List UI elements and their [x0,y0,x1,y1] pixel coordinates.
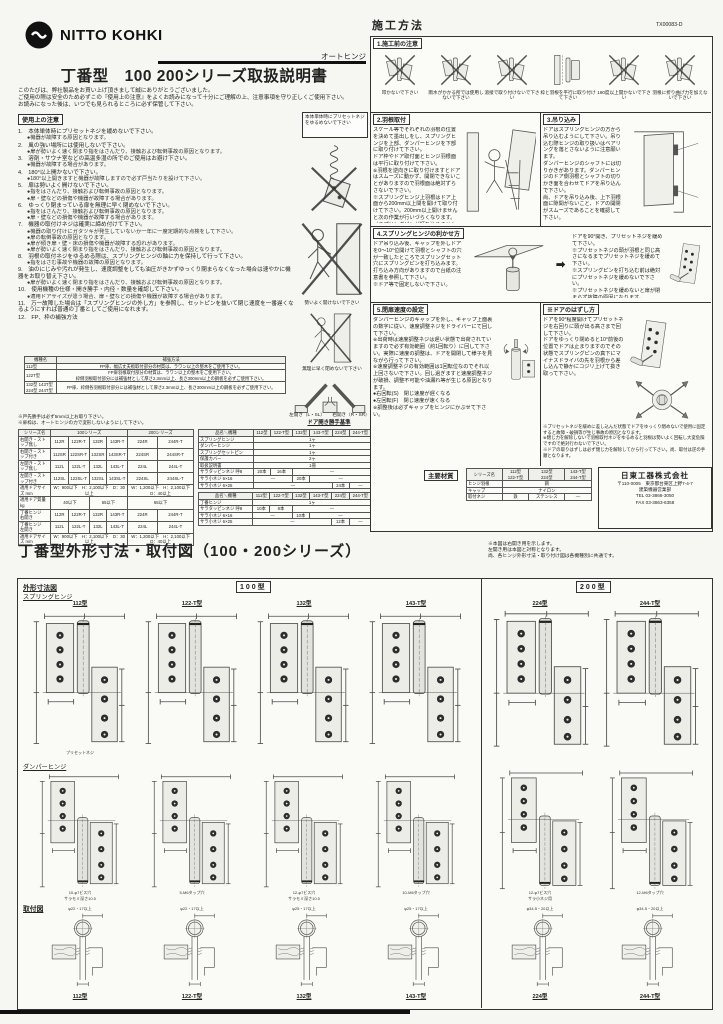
materials-heading: 主要材質 [424,470,458,481]
table-row: 左開き・ストップ付き112SL122SL-T132SL143SL-T224SL2… [19,473,194,485]
table-cell: シリーズ名 [19,430,51,437]
materials-table: シリーズ名112型 122-T型132型 224型143-T型 244-T型ヒン… [466,468,592,501]
brand-logo: NITTO KOHKI [24,20,163,50]
table-cell: 132R [89,436,107,448]
damper-hinge-drawing-122t [142,772,242,890]
parallel-mount-icon [546,50,590,90]
hole-note: 10-M6タップ穴 [366,890,466,896]
group-200-label: 200型 [576,581,611,593]
table-cell: 122L-T [68,460,89,472]
table-cell: 132型 [292,493,309,500]
precaution-item: 8. 羽根の取付ネジをゆるめる際は、スプリングヒンジの軸に力を保持して行って下さ… [18,254,296,267]
table-cell: 機種名 [25,357,57,364]
table-cell: 112型 [25,363,57,370]
mount-dim: φ25・17以上 [262,906,346,912]
table-cell: 丁番ヒンジ 左開き [19,521,51,533]
preset-screw-label: プリセットネジ [30,750,130,756]
table-cell: 122T型 [25,370,57,382]
table-cell: スプリングヒンジ [199,436,254,443]
divider [540,112,541,226]
right-open-label: 右開き（R・SR） [330,412,372,417]
table-cell: 224型 [332,493,349,500]
table-row: サラ小ネジ 6×16―10本― [199,512,372,519]
sec3-heading: 3.吊り込み [543,114,580,125]
door-close-caption: 無理に早く閉めないで下さい [294,366,370,371]
table-cell: 224SR [128,448,158,460]
sec5-body: ダンパーヒンジのキャップを外し、キャップ上面裏の数字に従い、速度調整ネジをドライ… [373,317,493,463]
table-row: サラタッピンネジ 呼820本16本― [199,469,372,476]
table-cell: 224L [128,521,158,533]
table-cell: 適用ドア質量 kg [19,497,51,509]
leaf-screwdriver-figure-2 [626,314,678,380]
sec4-body-right: ドアを90°開き、プリセットネジを緩めて下さい。 ※プリセットネジの頭が羽根と同… [572,234,664,298]
table-cell: 143R-T [107,436,128,448]
table-row: 品名＼機種112型122-T型132型143-T型224型244-T型 [199,493,372,500]
series-divider [481,578,482,1008]
table-row: 122T型FP扉羽根取付部分の材質は、ラワン以上の堅木をご使用下さい。 枠側羽根… [25,370,286,382]
table-cell: W：1,200以下 H：2,100以下 D：40以上 [128,485,194,497]
table-cell: 鋼 [502,481,591,488]
table-cell: 16本 [270,469,292,476]
mount-dim: φ22・17以上 [150,906,234,912]
sec1-figure: 叩かないで下さい [372,50,428,101]
sec3-body: ドアはスプリングヒンジの方から吊り込むようにして下さい。吊り込む際ヒンジの取り扱… [543,127,625,223]
table-row: 適用ドア質量 kg40以下65以下65以下 [19,497,194,509]
damper-hinge-drawing-143t [366,772,466,890]
door-direction-figure [288,376,372,416]
table-cell: 品名＼機種 [199,430,254,437]
table-cell: 244R-T [157,509,193,521]
table-cell: 132SR [89,448,107,460]
pivot-exploded-figure [466,236,558,300]
table-row: 機種名補強方法 [25,357,286,364]
table-cell: FP扉羽根取付部分の材質は、ラワン以上の堅木をご使用下さい。 枠側羽根取付部分に… [57,370,286,382]
table-cell: 244L-T [157,521,193,533]
sec6-heading: ※ドアのはずし方 [543,304,599,315]
brand-name: NITTO KOHKI [60,27,163,44]
table-cell: 20本 [253,469,270,476]
table-cell: 143SL-T [107,473,128,485]
divider [370,226,711,227]
parts-table-b: 品名＼機種112型122-T型132型143-T型224型244-T型丁番ヒンジ… [198,492,372,526]
table-cell: 40以下 [51,497,89,509]
damper-hinge-drawing-132 [254,772,354,890]
precaution-text: 12. FP、枠の補強方法 [18,315,296,321]
table-cell: 1ヶ [253,499,372,506]
sec1-figure: 雨水がかかる所では使用しないで下さい [428,50,484,101]
table-cell: 65以下 [89,497,128,509]
table-row: 取扱説明書1冊 [199,462,372,469]
table-cell: 1冊 [253,462,371,469]
table-cell: 保護カバー [199,456,254,463]
table-cell: 112型 [253,493,270,500]
construction-heading: 施工方法 [372,17,424,33]
precaution-text: 9. 油のにじみや汚れが発生し、速度調整をしても油圧がきかずゆっくり閉まらなくな… [18,267,296,280]
sec1-heading: 1.施工前の注意 [373,38,422,49]
page-title: 丁番型 100 200シリーズ取扱説明書 [20,64,368,86]
precaution-item: 11. 万一故障した場合は「スプリングヒンジの外し方」を参照し、セットピンを抜い… [18,301,296,314]
model-label: 112型 [30,992,130,1000]
sec2-heading: 2.羽根取付 [373,114,410,125]
table-cell: 112R [51,436,68,448]
sec1-figure-row: 叩かないで下さい 雨水がかかる所では使用しないで下さい 溶接で取り付けないで下さ… [372,50,710,101]
no-rain-icon [434,50,478,90]
table-row: 丁番ヒンジ1ヶ [199,499,372,506]
table-cell: 112SL [51,473,68,485]
sec2-body: スケール等でそれぞれの羽根の位置を決めて墨出しをし、スプリングヒンジを上部、ダン… [373,127,461,223]
damper-hinge-drawing-244t [600,768,704,892]
sec1-figure: 羽根に折り曲げ力を加えないで下さい [652,50,708,101]
table-cell: 122R-T [68,509,89,521]
table-cell: 244SL-T [157,473,193,485]
spec-table: シリーズ名100シリーズ200シリーズ右開き・ストップ無し112R122R-T1… [18,429,194,546]
precaution-item: 12. FP、枠の補強方法 [18,315,296,321]
table-cell: 10本 [253,506,270,513]
hole-note: 10-φ7ビス穴 サラモミ深さ10.5 [30,890,130,902]
table-cell: サラ小ネジ 6×25 [199,519,253,526]
table-cell: 左開き・ストップ無し [19,460,51,472]
sec1-figure: 溶接で取り付けないで下さい [484,50,540,101]
table-cell: 品名＼機種 [199,493,253,500]
table-row: ダンパーヒンジ1ヶ [199,443,372,450]
no-welding-icon [490,50,534,90]
table-cell: 143SR-T [107,448,128,460]
table-cell: 12本 [332,519,349,526]
worker-install-figure [464,122,536,222]
table-cell: 20本 [293,476,310,483]
spring-hinge-drawing-143t [366,608,466,750]
mount-drawing-244t [608,913,692,991]
table-cell: 143-T型 [310,430,332,437]
table-cell: 224R [128,509,158,521]
hole-note: 12-M6タップ穴 [600,890,700,896]
table-cell: 224型 [332,430,349,437]
spring-hinge-drawing-122t [142,608,242,750]
sec1-figure: 180度以上開かないで下さい [596,50,652,101]
model-label: 122-T型 [142,992,242,1000]
precaution-item: 10. 使用機種の仕様・開き勝手・内径・数量を確認して下さい。●適用ドアサイズが… [18,287,296,300]
precaution-item: 7. 機器の取付けネジは確実に締め付けて下さい。●機器の取り付けにガタツキが発生… [18,222,296,253]
no-hammer-icon [378,50,422,90]
text-line: ※扉枠は、オートヒンジの力で変形しないようにして下さい。 [18,420,278,426]
table-cell: シリーズ名 [467,469,503,481]
table-cell: サラ小ネジ 6×16 [199,476,254,483]
parts-table-b: 品名＼機種112型122-T型132型143-T型224型244-T型丁番ヒンジ… [198,492,372,526]
table-cell: ナイロン [502,487,591,494]
table-row: サラタッピンネジ 呼810本8本― [199,506,372,513]
table-cell: ダンパーヒンジ [199,443,254,450]
table-cell: 132型 224型 [529,469,565,481]
mount-drawing-143t [374,913,458,991]
sec6-body: ドアを90°程度開けてプリセットネジを右回りに頭が出る高さまで回して下さい。 ド… [543,317,625,397]
table-cell: サラ小ネジ 6×16 [199,512,253,519]
left-open-label: 左開き（L・SL） [286,412,328,417]
table-cell: 244L-T [157,460,193,472]
leaf-screwdriver-figure [666,234,710,298]
table-cell: ― [293,469,372,476]
sec6-notes: ※プリセットネジを緩めに差し込んだ状態でドアをゆっくり閉めないで使用に固定すると… [543,424,707,466]
model-label: 132型 [254,599,354,607]
table-row: シリーズ名112型 122-T型132型 224型143-T型 244-T型 [467,469,592,481]
table-row: 取付ネジ鉄ステンレス― [467,494,592,501]
spring-hinge-drawing-244t [600,604,704,754]
no-bending-icon [658,50,702,90]
table-cell: 132L [89,460,107,472]
table-cell: 適用ドアサイズ mm [19,485,51,497]
table-cell: 丁番ヒンジ 右開き [19,509,51,521]
doc-number: TX00083-D [656,22,683,28]
table-cell: 右開き・ストップ付き [19,448,51,460]
preset-screw-note: 本体単体時にプリセットネジをゆるめないで下さい [302,112,368,138]
table-cell: 2ヶ [253,456,371,463]
speed-adjust-figure [494,320,538,400]
door-open-caption: 勢いよく開けないで下さい [294,300,370,305]
mount-drawing-224 [498,913,582,991]
table-cell: 143R-T [107,509,128,521]
outline-dims-label: 外形寸法図 [23,582,57,592]
precaution-item: 6. ゆっくり閉まっている扉を無理に早く閉めないで下さい。●指をはさんだり、接触… [18,203,296,222]
precaution-item: 1. 本体単体時にプリセットネジを緩めないで下さい。●機器が故障する原因となりま… [18,129,296,142]
text-line: お読みになった後は、いつでも見られるところに必ず保管して下さい。 [18,102,368,109]
table-cell: 100シリーズ [51,430,128,437]
table-cell: サラタッピンネジ 呼8 [199,506,253,513]
table-cell: 244R-T [157,436,193,448]
table-row: シリーズ名100シリーズ200シリーズ [19,430,194,437]
table-cell: 224L [128,460,158,472]
dimensions-title: 丁番型外形寸法・取付図（100・200シリーズ） [18,540,361,561]
table-cell: 143-T型 244-T型 [565,469,592,481]
sec4-heading: 4.スプリングヒンジの利かせ方 [373,228,464,239]
precaution-text: 11. 万一故障した場合は「スプリングヒンジの外し方」を参照し、セットピンを抜い… [18,301,296,314]
table-cell: 112L [51,460,68,472]
table-row: 丁番ヒンジ 左開き112L122L-T132L143L-T224L244L-T [19,521,194,533]
group-100-label: 100型 [236,581,271,593]
table-cell: 244SR-T [157,448,193,460]
damper-hinge-label: ダンパーヒンジ [23,762,66,771]
table-row: 右開き・ストップ付き112SR122SR-T132SR143SR-T224SR2… [19,448,194,460]
precaution-bullet: ●機器が故障する場合があります。 [18,162,296,168]
mount-drawing-132 [262,913,346,991]
table-cell: 右開き・ストップ無し [19,436,51,448]
materials-table: シリーズ名112型 122-T型132型 224型143-T型 244-T型ヒン… [466,468,592,501]
table-row: 右開き・ストップ無し112R122R-T132R143R-T224R244R-T [19,436,194,448]
table-cell: 122SR-T [68,448,89,460]
model-label: 122-T型 [142,599,242,607]
table-cell: ヒンジ羽根 [467,481,503,488]
sec1-figure: 枠と羽根を平行に取り付けて下さい [540,50,596,101]
table-cell: ― [565,494,592,501]
table-cell: スプリングセットピン [199,449,254,456]
table-cell: 122-T型 [270,430,292,437]
table-cell: 丁番ヒンジ [199,499,253,506]
company-name: 日東工器株式会社 [601,470,709,481]
table-cell: ― [349,482,371,489]
hole-note: 5-M6タップ穴 [142,890,242,896]
parts-table-a: 品名＼機種112型122-T型132型143-T型224型244-T型スプリング… [198,429,372,489]
damper-hinge-drawing-224 [490,768,594,892]
table-row: サラ小ネジ 6×16―20本― [199,476,372,483]
table-cell: 1ヶ [253,443,371,450]
table-cell: 112R [51,509,68,521]
model-label: 244-T型 [600,992,700,1000]
precaution-bullet: ●扉・壁などの損傷や機器が故障する場合があります。 [18,196,296,202]
table-cell: 122L-T [68,521,89,533]
table-cell: 122R-T [68,436,89,448]
dimensions-note: ※本図は右開き用を示します。 左開き用は本図と対称となります。 尚、各ヒンジ外形… [488,542,710,561]
mount-drawing-122t [150,913,234,991]
table-cell: 244-T型 [349,430,371,437]
mount-drawing-112 [38,913,122,991]
table-cell: 132型 143T型 224型 244T型 [25,382,57,394]
table-row: スプリングセットピン1ヶ [199,449,372,456]
precaution-bullet: ●扉・壁などの損傷や機器が故障する場合があります。 [18,215,296,221]
table-cell: 取付ネジ [467,494,503,501]
table-cell: 143L-T [107,460,128,472]
table-cell: W：900以下 H：2,100以下 D：30以上 [51,485,128,497]
table-cell: 122-T型 [270,493,292,500]
precaution-bullet: ●適用ドアサイズが違う場合、扉・壁などの損傷や機器が故障する場合があります。 [18,294,296,300]
company-box: 日東工器株式会社 〒110-0005 東京都台東区上野7-4-7 建築機器営業部… [598,467,712,529]
table-cell: 10本 [292,512,309,519]
door-close-crossed-figure [300,310,362,366]
reinforce-table: 機種名補強方法112型FP扉、幅広丈夫板取付部分の材質は、ラワン以上の堅木をご使… [24,356,286,394]
hole-note: 12-φ7ビス穴 サラ小ネジ用 [490,890,590,902]
door-hang-figure [626,122,708,222]
table-cell: 143L-T [107,521,128,533]
table-cell: サラタッピンネジ 呼8 [199,469,254,476]
arrow-right-icon: ➡ [556,258,565,271]
sec4-body-left: ドア吊り込み後、キャップを外しドアを0～10°位開けて羽根とシャフトの穴が一致し… [373,241,463,299]
table-cell: 8本 [270,506,292,513]
precaution-bullet: ●指をはさむ事故や機器の故障の原因となります。 [18,260,296,266]
table-cell: 112型 122-T型 [502,469,529,481]
model-label: 132型 [254,992,354,1000]
mount-dim: φ34.5・20以上 [498,906,582,912]
nitto-kohki-logo-icon [24,20,54,50]
table-cell: ― [253,476,292,483]
table-cell: ― [253,519,332,526]
precaution-bullet: ●機器が故障する原因となります。 [18,135,296,141]
model-label: 143-T型 [366,992,466,1000]
company-fax: FAX 03-3863-6358 [601,500,709,506]
table-cell: 112L [51,521,68,533]
table-cell: ― [253,482,332,489]
spring-hinge-drawing-132 [254,608,354,750]
table-cell: ― [310,476,372,483]
table-row: 適用ドアサイズ mmW：900以下 H：2,100以下 D：30以上W：1,20… [19,485,194,497]
table-cell: 鉄 [502,494,529,501]
table-row: 132型 143T型 224型 244T型FP扉、枠側各羽根取付部分には補強材と… [25,382,286,394]
table-cell: 200シリーズ [128,430,194,437]
table-row: ヒンジ羽根鋼 [467,481,592,488]
table-row: キャップナイロン [467,487,592,494]
table-cell: ― [349,519,371,526]
precaution-list: 1. 本体単体時にプリセットネジを緩めないで下さい。●機器が故障する原因となりま… [18,129,296,322]
table-cell: 24本 [332,482,349,489]
table-cell: 224R [128,436,158,448]
table-cell: 132L [89,521,107,533]
table-row: 品名＼機種112型122-T型132型143-T型224型244-T型 [199,430,372,437]
damper-hinge-drawing-112 [30,772,130,890]
no-over-180-icon [602,50,646,90]
table-row: サラ小ネジ 6×25―12本― [199,519,372,526]
manual-page: NITTO KOHKI オートヒンジ 丁番型 100 200シリーズ取扱説明書 … [0,0,723,1024]
table-cell: 132SL [89,473,107,485]
table-row: 保護カバー2ヶ [199,456,372,463]
table-cell: ステンレス [529,494,565,501]
model-label: 143-T型 [366,599,466,607]
spec-table: シリーズ名100シリーズ200シリーズ右開き・ストップ無し112R122R-T1… [18,429,194,546]
table-cell: 65以下 [128,497,194,509]
precaution-bullet: ●扉が勢いよく速く閉まり指をはさんだり、接触および転倒事故の原因となります。 [18,149,296,155]
divider [540,302,541,466]
table-cell: FP扉、枠側各羽根取付部分には補強材として厚さ2.3mm以上、長さ300mm以上… [57,382,286,394]
table-cell: 112型 [253,430,270,437]
table-cell: ― [310,512,372,519]
table-row: スプリングヒンジ1ヶ [199,436,372,443]
door-open-crossed-figure [298,218,366,300]
table-cell: FP扉、幅広丈夫板取付部分の材質は、ラワン以上の堅木をご使用下さい。 [57,363,286,370]
table-cell: ― [253,512,292,519]
table-cell: 1ヶ [253,436,371,443]
hole-note: 12-φ7ビス穴 サラモミ深さ10.5 [254,890,354,902]
precaution-bullet: ●扉が勢いよく速く閉まり指をはさんだり、接触および転倒事故の原因となります。 [18,280,296,286]
table-cell: サラ小ネジ 6×25 [199,482,254,489]
table-row: サラ小ネジ 6×25―24本― [199,482,372,489]
precaution-item: 3. 溶剤・サウナ室などの高温多湿の所でのご使用はお避け下さい。●機器が故障する… [18,156,296,169]
table-cell: 122SL-T [68,473,89,485]
sec5-heading: 5.閉扉速度の設定 [373,304,428,315]
precaution-item: 2. 風の強い場所には使用しないで下さい。●扉が勢いよく速く閉まり指をはさんだり… [18,143,296,156]
text-line: このたびは、弊社製品をお買い上げ頂きまして誠にありがとうございました。 [18,88,368,95]
table-cell: ― [292,506,371,513]
table-cell: キャップ [467,487,503,494]
precaution-item: 5. 扉は勢いよく開けないで下さい。●指をはさんだり、接触および転倒事故の原因と… [18,183,296,202]
precaution-bullet: ●扉が勢いよく速く閉まり指をはさんだり、接触および転倒事故の原因となります。 [18,247,296,253]
usage-notes-heading: 使用上の注意 [18,114,63,125]
precaution-item: 9. 油のにじみや汚れが発生し、速度調整をしても油圧がきかずゆっくり閉まらなくな… [18,267,296,286]
model-label: 112型 [30,599,130,607]
table-cell: 取扱説明書 [199,462,254,469]
reinforce-notes: ※戸先勝手は必ず5mm以上お取り下さい。※扉枠は、オートヒンジの力で変形しないよ… [18,414,278,425]
parts-table-a: 品名＼機種112型122-T型132型143-T型224型244-T型スプリング… [198,429,372,489]
mount-dim: φ34.5・20以上 [608,906,692,912]
spring-crossed-figure [306,140,362,214]
table-cell: 補強方法 [57,357,286,364]
text-line: ご使用の際は安全のため必ずこの『使用上の注意』をよくお読みになって十分にご理解の… [18,95,368,102]
spring-hinge-drawing-224 [490,604,594,754]
precaution-bullet: ●180°以上開きますと機器が故障しますので必ず戸当たりを設けて下さい。 [18,176,296,182]
table-cell: 244-T型 [349,493,371,500]
table-cell: 224SL [128,473,158,485]
table-cell: 143-T型 [310,493,332,500]
spring-pin-removal-figure [616,378,708,424]
table-cell: 132型 [293,430,310,437]
mount-dim: φ22・17以上 [38,906,122,912]
table-cell: 左開き・ストップ付き [19,473,51,485]
scan-edge-bar [0,1010,410,1014]
spring-hinge-drawing-112 [30,608,130,750]
table-row: 丁番ヒンジ 右開き112R122R-T132R143R-T224R244R-T [19,509,194,521]
table-cell: 1ヶ [253,449,371,456]
table-row: 112型FP扉、幅広丈夫板取付部分の材質は、ラワン以上の堅木をご使用下さい。 [25,363,286,370]
table-cell: 112SR [51,448,68,460]
precaution-item: 4. 180°以上開かないで下さい。●180°以上開きますと機器が故障しますので… [18,170,296,183]
door-direction-caption: ドア開き勝手基準 [288,420,370,426]
table-cell: 132R [89,509,107,521]
intro-paragraph: このたびは、弊社製品をお買い上げ頂きまして誠にありがとうございました。ご使用の際… [18,88,368,108]
model-label: 224型 [490,992,590,1000]
